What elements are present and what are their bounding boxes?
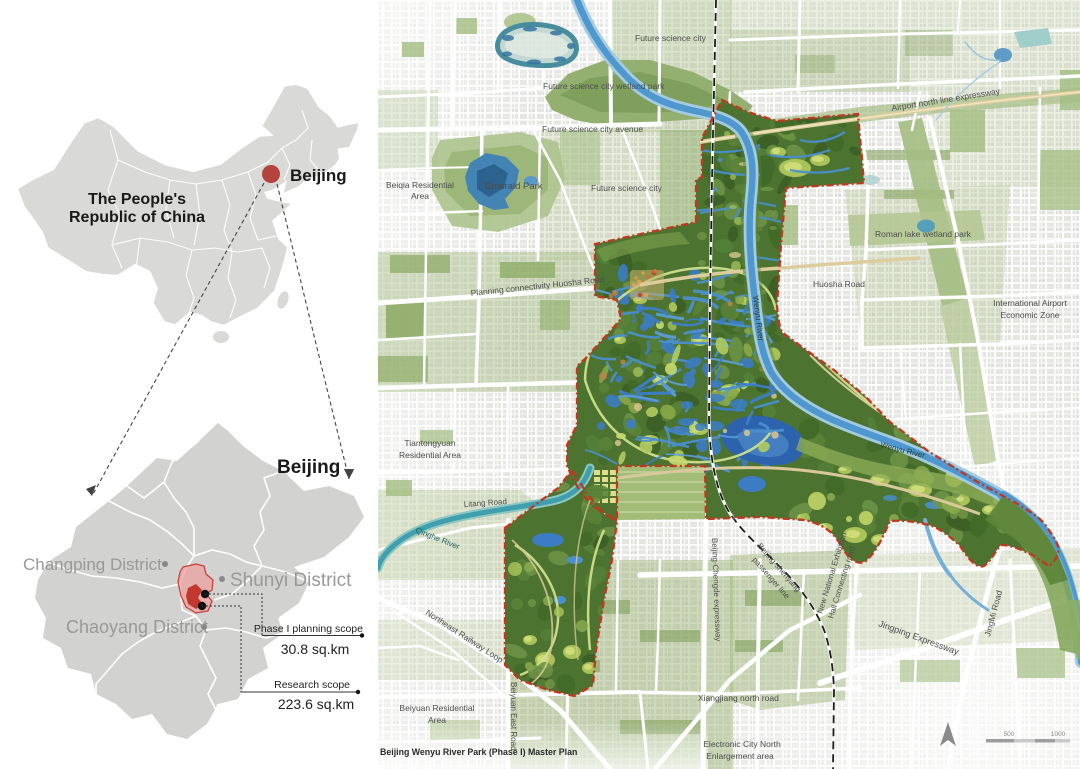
svg-text:Emerald Park: Emerald Park [485,181,543,192]
svg-text:Beiyuan Residential: Beiyuan Residential [399,703,474,713]
svg-text:30.8 sq.km: 30.8 sq.km [281,641,349,657]
svg-text:Economic Zone: Economic Zone [1000,310,1059,320]
svg-text:223.6 sq.km: 223.6 sq.km [278,696,354,712]
svg-text:Huosha Road: Huosha Road [813,279,865,289]
svg-text:Beijing Wenyu River Park (Phas: Beijing Wenyu River Park (Phase I) Maste… [380,747,577,757]
svg-text:Roman lake wetland park: Roman lake wetland park [875,229,972,239]
svg-text:The People's: The People's [88,191,186,208]
svg-text:Electronic City North: Electronic City North [703,739,781,749]
svg-text:Area: Area [428,715,446,725]
svg-text:Area: Area [411,191,429,201]
svg-text:Beiyuan East Road: Beiyuan East Road [509,682,518,751]
svg-text:Enlargement area: Enlargement area [706,751,774,761]
svg-text:Xiangjiang north road: Xiangjiang north road [698,693,779,703]
svg-text:Research scope: Research scope [274,679,350,691]
svg-text:Future science city: Future science city [635,33,707,43]
svg-text:Shunyi District: Shunyi District [230,570,352,591]
svg-text:Phase I planning scope: Phase I planning scope [254,623,363,635]
svg-text:Future science city avenue: Future science city avenue [542,124,643,134]
svg-text:Beijing: Beijing [290,166,347,185]
svg-text:Future science city wetland pa: Future science city wetland park [543,81,665,91]
svg-text:Future science city: Future science city [591,183,663,193]
svg-text:Chaoyang District: Chaoyang District [66,617,208,637]
svg-text:Residential Area: Residential Area [399,450,461,460]
svg-text:International Airport: International Airport [993,298,1067,308]
svg-text:500: 500 [1004,731,1015,738]
svg-text:Republic of China: Republic of China [69,209,205,226]
svg-text:Beiqia Residential: Beiqia Residential [386,180,454,190]
svg-text:Beijing: Beijing [277,457,340,478]
svg-text:Tiantongyuan: Tiantongyuan [404,438,455,448]
svg-text:1000: 1000 [1051,731,1066,738]
svg-text:Changping District: Changping District [23,555,162,574]
